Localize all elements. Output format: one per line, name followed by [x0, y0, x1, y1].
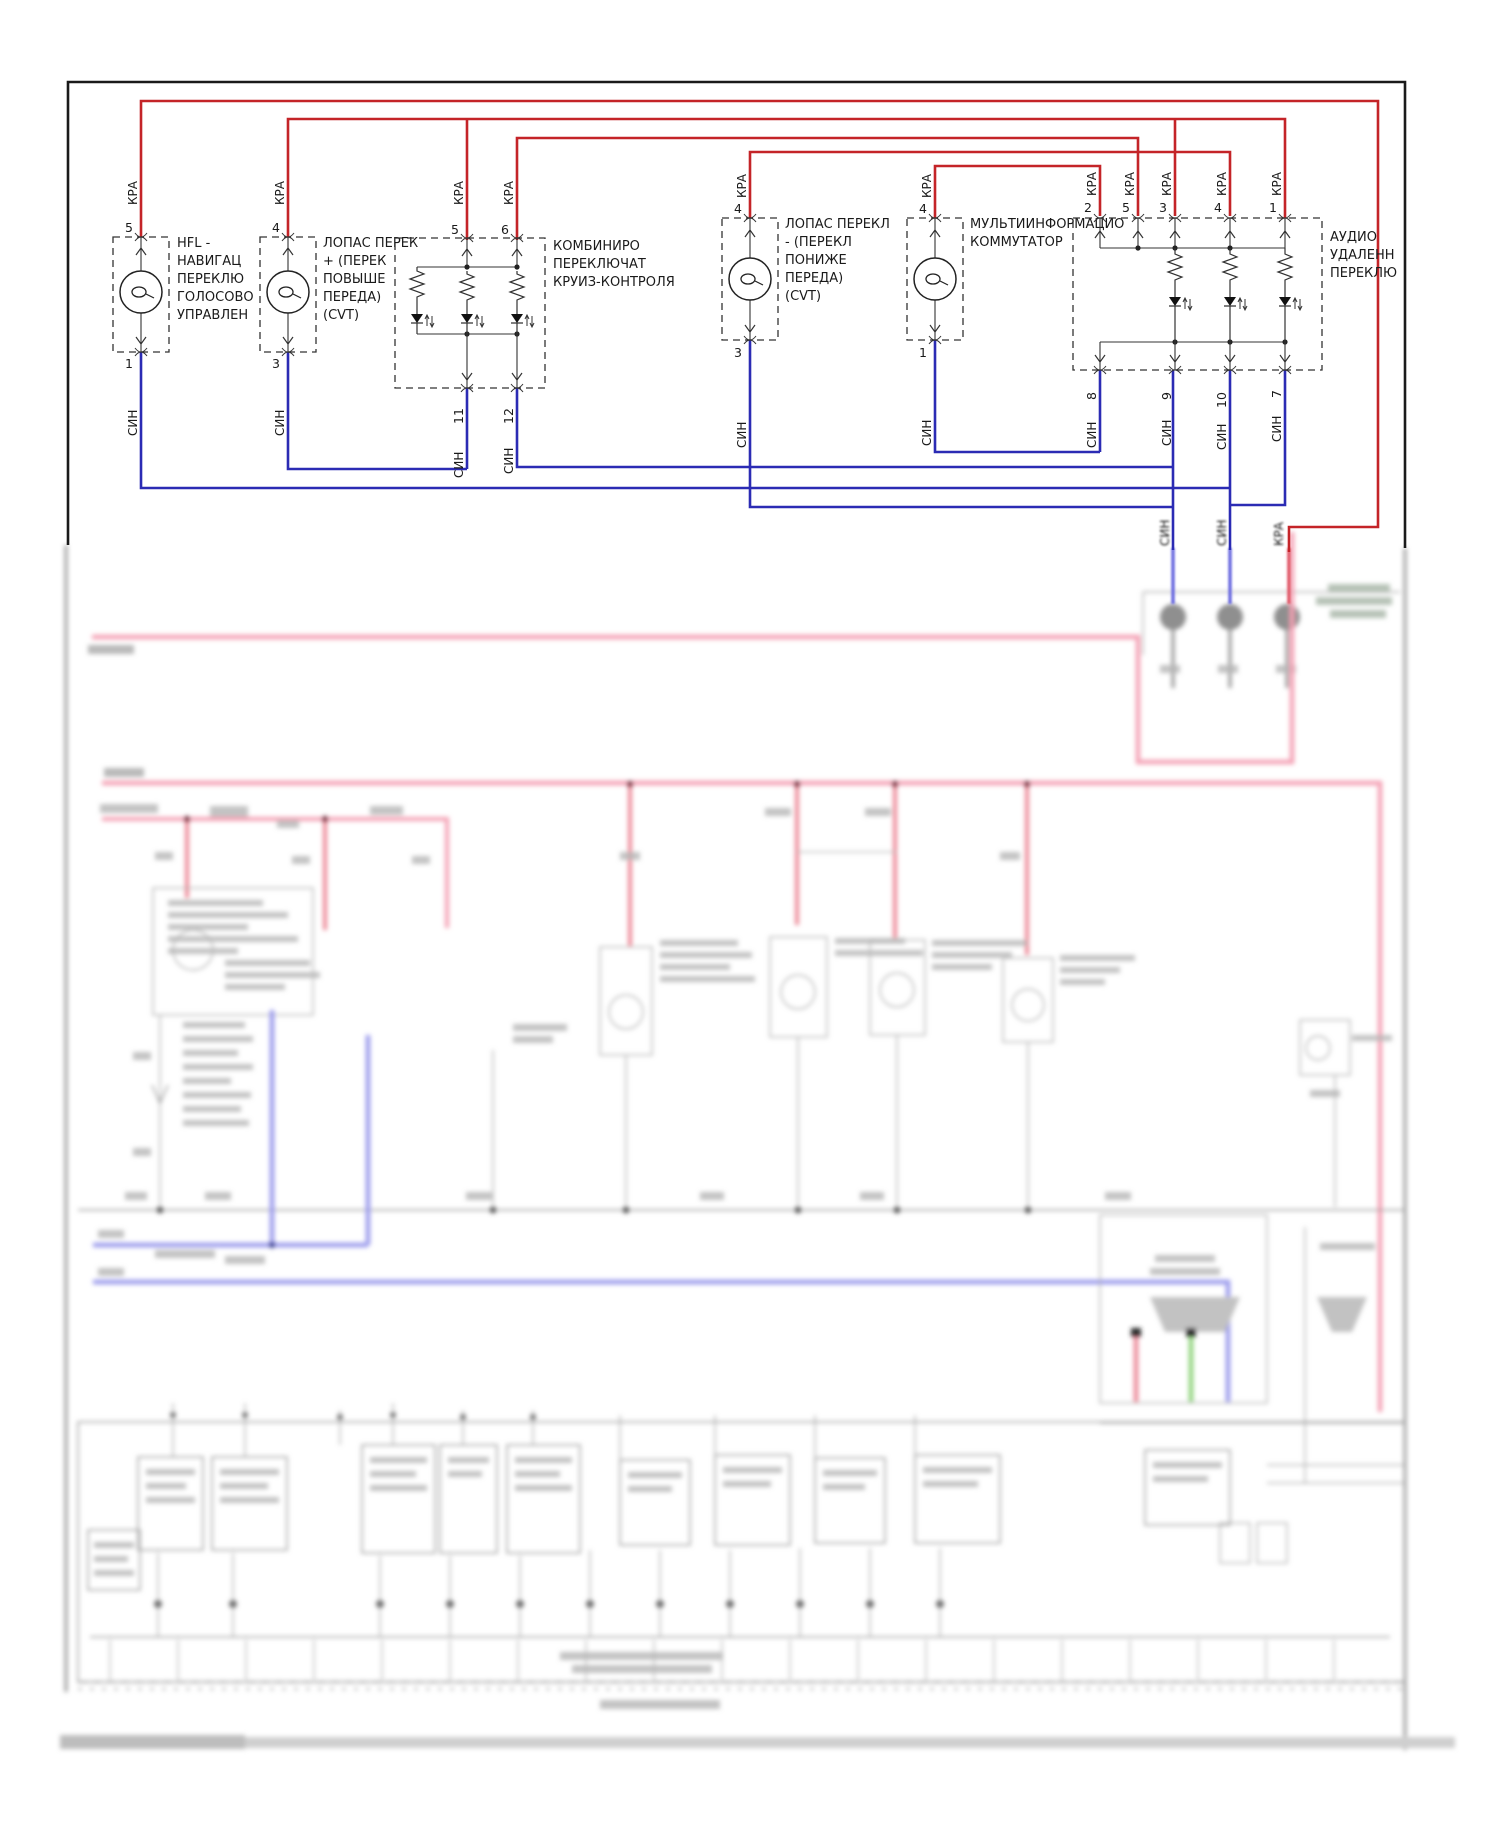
svg-text:КРУИЗ-КОНТРОЛЯ: КРУИЗ-КОНТРОЛЯ — [553, 275, 675, 290]
bulb-icon — [729, 258, 771, 300]
svg-text:ЛОПАС ПЕРЕКЛ: ЛОПАС ПЕРЕКЛ — [785, 217, 890, 232]
right-module-wires — [1131, 1035, 1392, 1402]
svg-text:ПОНИЖЕ: ПОНИЖЕ — [785, 253, 847, 268]
harness-connector-blob — [1143, 584, 1400, 688]
wire-label-kra: КРА — [502, 180, 516, 205]
pin-number: 5 — [1122, 200, 1130, 215]
component-label: ЛОПАС ПЕРЕКЛ - (ПЕРЕКЛ ПОНИЖЕ ПЕРЕДА) (C… — [785, 217, 890, 304]
bulb-icon — [120, 271, 162, 313]
component-paddle-shift-down: 4 3 КРА СИН ЛОПАС ПЕРЕКЛ - (ПЕРЕКЛ ПОНИЖ… — [722, 173, 890, 448]
pin-number: 6 — [501, 222, 509, 237]
wire-label-kra: КРА — [273, 180, 287, 205]
wire-label-sin: СИН — [502, 448, 516, 474]
svg-text:ГОЛОСОВО: ГОЛОСОВО — [177, 290, 254, 305]
signal-wire-blue-long — [93, 1268, 1228, 1402]
wire-label-kra: КРА — [1123, 171, 1137, 196]
bottom-module-box — [78, 1403, 1405, 1689]
power-wire-pink-branch — [100, 804, 1020, 930]
bottom-grey-bar — [60, 1737, 1455, 1748]
wire-label-sin: СИН — [126, 410, 140, 436]
svg-text:ПЕРЕДА): ПЕРЕДА) — [785, 271, 843, 286]
svg-text:ПОВЫШЕ: ПОВЫШЕ — [323, 272, 386, 287]
svg-text:ПЕРЕКЛЮ: ПЕРЕКЛЮ — [177, 272, 244, 287]
wire-label-kra: КРА — [1085, 171, 1099, 196]
component-label: КОМБИНИРО ПЕРЕКЛЮЧАТ КРУИЗ-КОНТРОЛЯ — [553, 239, 675, 290]
component-cruise-combo-switch: 5 6 11 12 КРА КРА СИН СИН КОМБИНИРО ПЕРЕ… — [395, 180, 675, 478]
pin-number: 4 — [272, 220, 280, 235]
wire-label-sin: СИН — [273, 410, 287, 436]
pin-number: 3 — [734, 345, 742, 360]
wire-label-kra: КРА — [1215, 171, 1229, 196]
power-wire-pink-loop — [88, 532, 1292, 762]
resistor-led-branch — [1168, 248, 1292, 342]
wire-label-kra: КРА — [1160, 171, 1174, 196]
wire-label-sin: СИН — [1270, 416, 1284, 442]
wire-label-kra: КРА — [452, 180, 466, 205]
wire-label-kra: КРА — [126, 180, 140, 205]
blue-wire-paddle-down — [750, 340, 1173, 507]
svg-text:ПЕРЕКЛЮ: ПЕРЕКЛЮ — [1330, 266, 1397, 281]
svg-text:ПЕРЕКЛЮЧАТ: ПЕРЕКЛЮЧАТ — [553, 257, 646, 272]
pin-number: 5 — [451, 222, 459, 237]
blue-wire-combo-12 — [517, 388, 1173, 467]
svg-text:(CVT): (CVT) — [323, 308, 359, 323]
red-wire-paddle-down — [750, 152, 1230, 218]
wire-label-kra: КРА — [735, 173, 749, 198]
pin-number: 7 — [1269, 390, 1284, 398]
svg-text:АУДИО: АУДИО — [1330, 230, 1377, 245]
wire-label-sin: СИН — [1160, 420, 1174, 446]
svg-text:+ (ПЕРЕК: + (ПЕРЕК — [323, 254, 386, 269]
wiring-diagram-page: СИН СИН КРА — [0, 0, 1500, 1828]
pin-number: 5 — [125, 220, 133, 235]
wiring-diagram-canvas: СИН СИН КРА — [0, 0, 1500, 1828]
wire-label-sin: СИН — [1215, 424, 1229, 450]
wire-color-label: КРА — [1272, 521, 1286, 546]
svg-text:ПЕРЕДА): ПЕРЕДА) — [323, 290, 381, 305]
svg-text:(CVT): (CVT) — [785, 289, 821, 304]
svg-text:КОМБИНИРО: КОМБИНИРО — [553, 239, 640, 254]
bulb-icon — [914, 258, 956, 300]
pin-number: 2 — [1084, 200, 1092, 215]
svg-text:УДАЛЕНН: УДАЛЕНН — [1330, 248, 1395, 263]
wire-label-sin: СИН — [920, 420, 934, 446]
pin-number: 4 — [919, 201, 927, 216]
red-wire-hfl — [141, 101, 1378, 552]
bulb-icon — [267, 271, 309, 313]
red-wire-multi-info — [935, 166, 1100, 218]
svg-text:- (ПЕРЕКЛ: - (ПЕРЕКЛ — [785, 235, 852, 250]
wire-label-sin: СИН — [452, 452, 466, 478]
pin-number: 3 — [1159, 200, 1167, 215]
component-audio-remote-switch: 2 5 3 4 1 КРА КРА КРА КРА КРА 8 9 10 7 С… — [1073, 171, 1397, 450]
pin-number: 4 — [1214, 200, 1222, 215]
svg-text:НАВИГАЦ: НАВИГАЦ — [177, 254, 241, 269]
pin-number: 1 — [919, 345, 927, 360]
top-schematic: 5 1 КРА СИН HFL - НАВИГАЦ ПЕРЕКЛЮ ГОЛОСО… — [68, 82, 1405, 552]
pin-number: 11 — [451, 408, 466, 424]
wire-color-label: СИН — [1158, 520, 1172, 546]
pin-number: 9 — [1159, 392, 1174, 400]
blue-wire-paddle-up — [288, 352, 467, 469]
blue-wire-multi-info — [935, 340, 1100, 452]
pin-number: 12 — [501, 408, 516, 424]
wire-color-label: СИН — [1215, 520, 1229, 546]
pin-number: 10 — [1214, 392, 1229, 408]
faded-component-row — [152, 852, 1053, 1207]
component-hfl-voice-switch: 5 1 КРА СИН HFL - НАВИГАЦ ПЕРЕКЛЮ ГОЛОСО… — [113, 180, 254, 436]
svg-text:УПРАВЛЕН: УПРАВЛЕН — [177, 308, 248, 323]
bottom-module-text-blobs — [94, 1457, 1222, 1709]
wire-label-kra: КРА — [1270, 171, 1284, 196]
pin-number: 8 — [1084, 392, 1099, 400]
pin-number: 4 — [734, 201, 742, 216]
connector-break-icon — [1094, 214, 1291, 374]
pin-number: 3 — [272, 356, 280, 371]
svg-text:HFL -: HFL - — [177, 236, 211, 251]
blue-return-wires — [141, 340, 1285, 550]
component-label: АУДИО УДАЛЕНН ПЕРЕКЛЮ — [1330, 230, 1397, 281]
wire-label-sin: СИН — [1085, 422, 1099, 448]
svg-text:КОММУТАТОР: КОММУТАТОР — [970, 235, 1063, 250]
bottom-grey-bar-left — [60, 1735, 245, 1749]
component-label: ЛОПАС ПЕРЕК + (ПЕРЕК ПОВЫШЕ ПЕРЕДА) (CVT… — [323, 236, 418, 323]
component-label: HFL - НАВИГАЦ ПЕРЕКЛЮ ГОЛОСОВО УПРАВЛЕН — [177, 236, 254, 323]
pin-number: 1 — [125, 356, 133, 371]
blurred-lower-schematic — [60, 532, 1455, 1750]
wire-label-sin: СИН — [735, 422, 749, 448]
svg-text:МУЛЬТИИНФОРМАЦИО: МУЛЬТИИНФОРМАЦИО — [970, 217, 1124, 232]
red-feed-wires — [141, 101, 1378, 552]
bottom-module-dots — [154, 1412, 944, 1608]
pin-number: 1 — [1269, 200, 1277, 215]
signal-wire-blue-short — [93, 1010, 368, 1264]
svg-text:ЛОПАС ПЕРЕК: ЛОПАС ПЕРЕК — [323, 236, 418, 251]
led-icon — [411, 314, 523, 323]
wire-label-kra: КРА — [920, 173, 934, 198]
